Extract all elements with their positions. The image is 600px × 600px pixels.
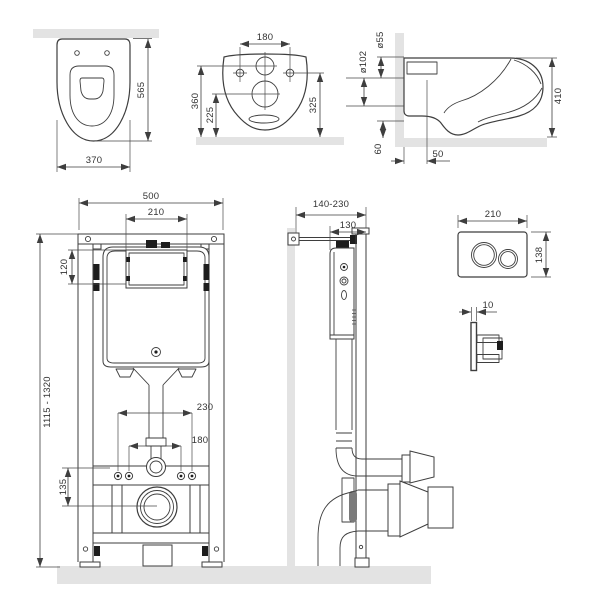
flush-bend-pipe — [336, 448, 403, 476]
wall-anchor-plate — [288, 233, 299, 245]
dim-label-hole-spacing: 180 — [257, 32, 273, 43]
cistern-port-dot — [343, 266, 346, 269]
bottom-crossbar — [93, 533, 209, 543]
technical-drawing-canvas: 565 370 180 360 225 325 ø55 ø102 — [0, 0, 600, 600]
mounting-tab — [161, 242, 170, 248]
floor-surface — [57, 566, 431, 584]
fixing-stud-dot — [128, 475, 131, 478]
dim-label-plate-height: 138 — [534, 247, 545, 263]
drain-socket — [137, 487, 177, 527]
dim-label-toilet-depth: 565 — [136, 82, 147, 98]
dim-label-drain-diameter: ø102 — [358, 51, 369, 73]
dim-label-height: 410 — [553, 88, 564, 104]
support-foot — [80, 562, 100, 567]
floor-surface — [196, 137, 344, 145]
dim-label-flush-diameter: ø55 — [375, 32, 386, 49]
flush-plate-side-profile — [471, 323, 477, 371]
flush-valve-dot — [154, 350, 157, 353]
mount-tab-lower — [477, 355, 499, 363]
dim-label-drain-axis: 135 — [58, 479, 69, 495]
toilet-rear-view: 180 360 225 325 — [190, 32, 344, 145]
rail-foot — [355, 558, 369, 567]
support-foot — [202, 562, 222, 567]
tank-base-fittings — [116, 368, 196, 385]
flush-pipe-connector — [410, 451, 434, 483]
dim-label-frame-height-range: 1115 - 1320 — [42, 376, 53, 428]
toilet-plan-view: 565 370 — [33, 29, 159, 172]
dim-label-frame-width: 500 — [143, 191, 159, 202]
rail-screw — [359, 545, 362, 548]
frame-rail — [356, 234, 366, 558]
dim-label-plate-thickness: 10 — [483, 300, 494, 311]
dim-label-flush-height: 360 — [190, 93, 201, 109]
dim-label-fixing-inner: 180 — [192, 435, 208, 446]
fixing-stud-dot — [191, 475, 194, 478]
dim-label-frame-depth: 130 — [340, 220, 356, 231]
floor-surface — [395, 138, 547, 147]
installation-frame-side-view: 140-230 130 — [287, 199, 453, 575]
toilet-side-view: ø55 ø102 410 60 50 — [346, 32, 564, 164]
drain-outlet-box — [143, 545, 172, 566]
dim-label-drain-axis-offset: 50 — [433, 149, 444, 160]
dim-label-service-opening: 210 — [148, 207, 164, 218]
wall-surface — [287, 228, 295, 575]
dim-label-plate-width: 210 — [485, 209, 501, 220]
wall-surface — [33, 29, 159, 38]
drain-end-socket — [428, 487, 453, 528]
dim-label-drain-axis-height: 60 — [373, 144, 384, 155]
extension-lines — [472, 307, 477, 321]
dim-label-drain-height: 225 — [205, 107, 216, 123]
drain-collar — [388, 484, 400, 536]
flush-bend-port — [147, 458, 166, 477]
flush-pipe — [149, 385, 163, 438]
fixing-stud-dot — [180, 475, 183, 478]
installation-frame-front-view: 500 210 120 1115 - 1320 230 180 135 — [36, 191, 224, 567]
dim-label-mounting-depth: 140-230 — [313, 199, 349, 210]
rail-bracket — [93, 244, 101, 249]
drain-taper — [400, 481, 428, 537]
wall-bracket-rod — [299, 238, 351, 241]
mounting-tab — [146, 240, 157, 248]
pipe-coupling — [146, 438, 166, 446]
fixing-stud-dot — [117, 475, 120, 478]
dim-label-toilet-width: 370 — [86, 155, 102, 166]
drain-seal — [349, 491, 357, 522]
mount-tab-upper — [477, 335, 499, 343]
dim-label-fixing-outer: 230 — [197, 402, 213, 413]
dim-label-cistern-offset: 120 — [59, 259, 70, 275]
flush-pipe-vertical — [336, 339, 352, 448]
wall-surface — [395, 33, 404, 140]
technical-drawing-page: 565 370 180 360 225 325 ø55 ø102 — [0, 0, 600, 600]
mechanism-cap — [497, 341, 503, 350]
flush-plate-views: 210 138 10 — [458, 209, 551, 371]
foot-screw — [83, 547, 87, 551]
service-opening — [126, 250, 187, 288]
dim-label-fixing-height: 325 — [308, 97, 319, 113]
foot-screw — [214, 547, 218, 551]
flush-pipe-collar — [402, 455, 410, 482]
